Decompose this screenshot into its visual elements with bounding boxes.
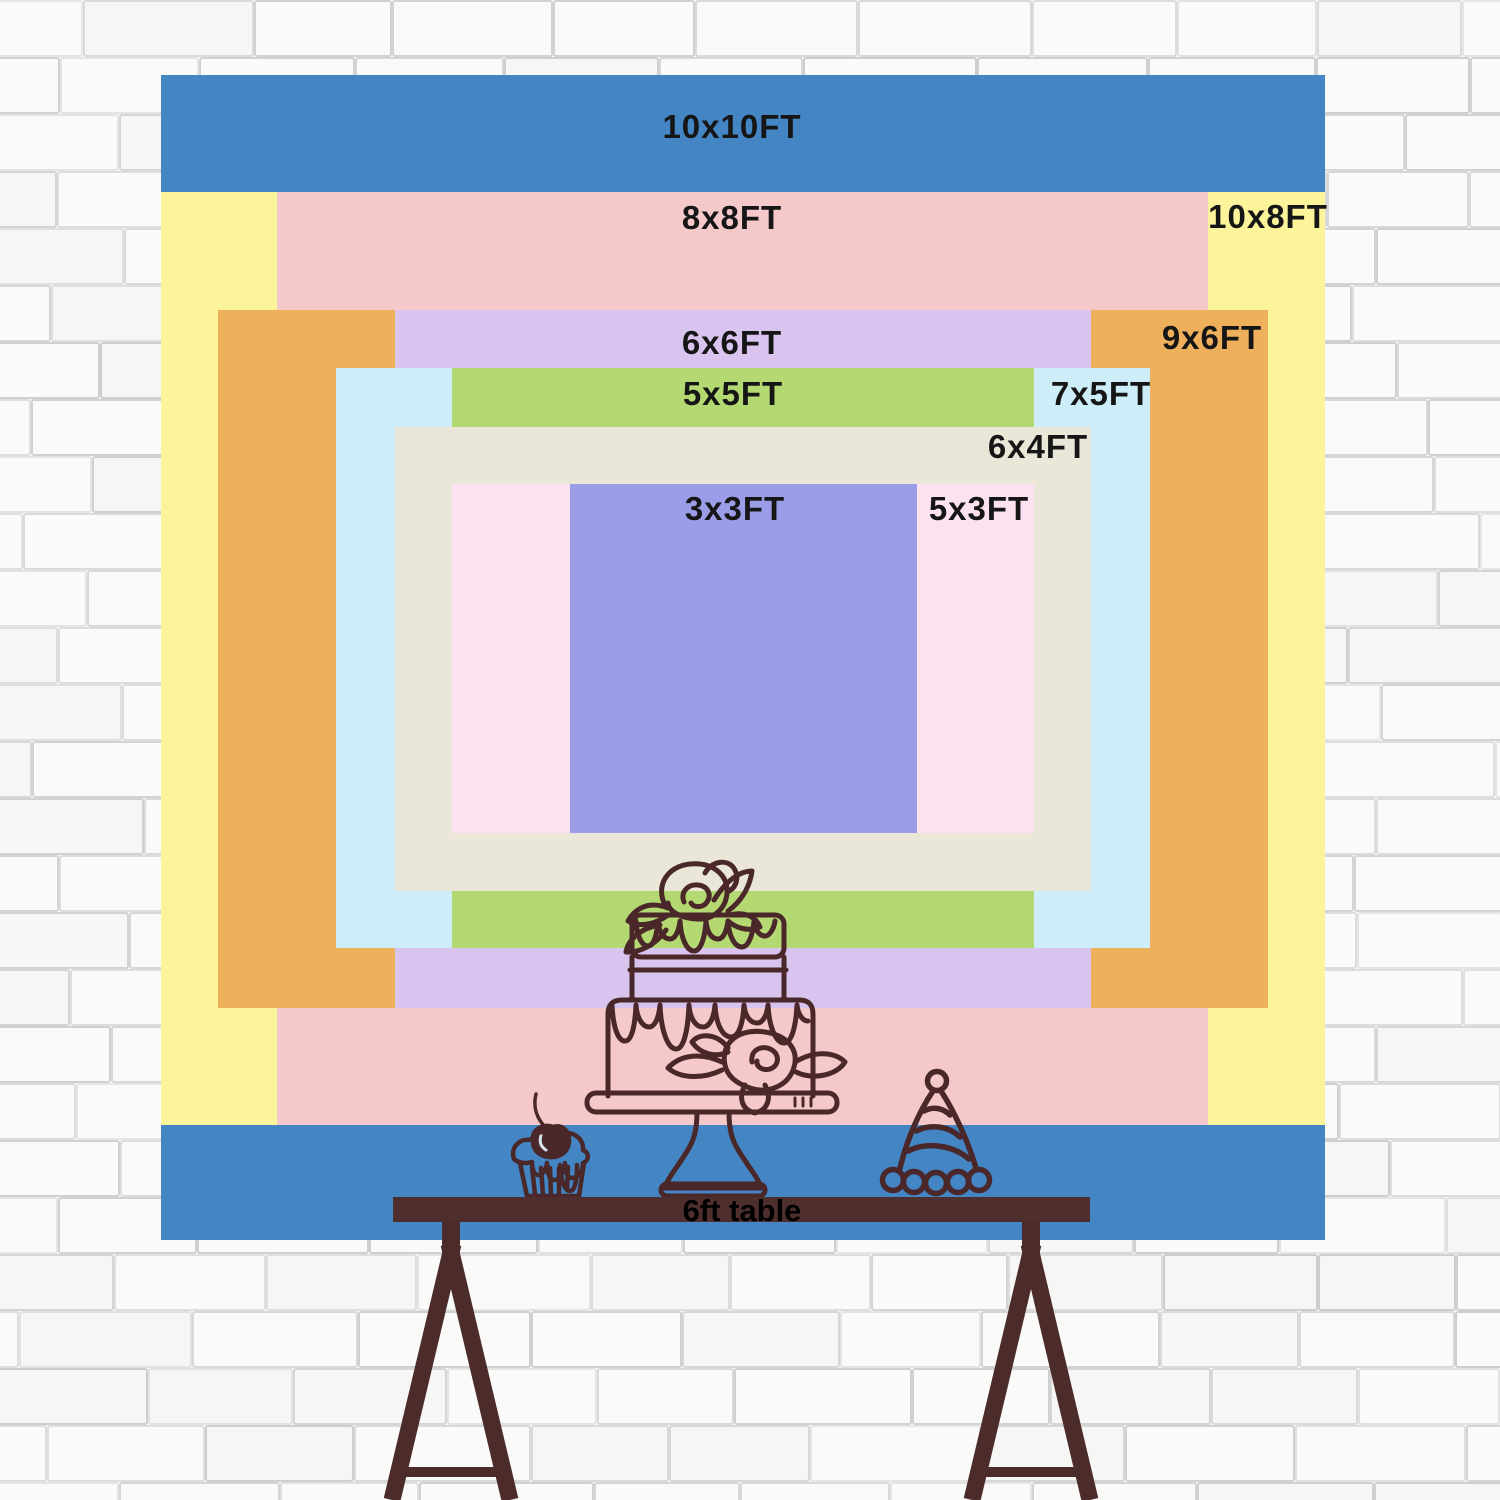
party-hat-icon	[883, 1072, 990, 1194]
table-scene: 6ft table	[0, 0, 1500, 1500]
table-legs	[392, 1222, 1090, 1500]
birthday-cake-icon	[587, 862, 845, 1196]
table-size-label: 6ft table	[683, 1193, 802, 1228]
backdrop-size-chart: { "wall": { "background": "#fafaf8", "br…	[0, 0, 1500, 1500]
cupcake-icon	[513, 1094, 588, 1196]
table: 6ft table	[392, 1193, 1090, 1500]
